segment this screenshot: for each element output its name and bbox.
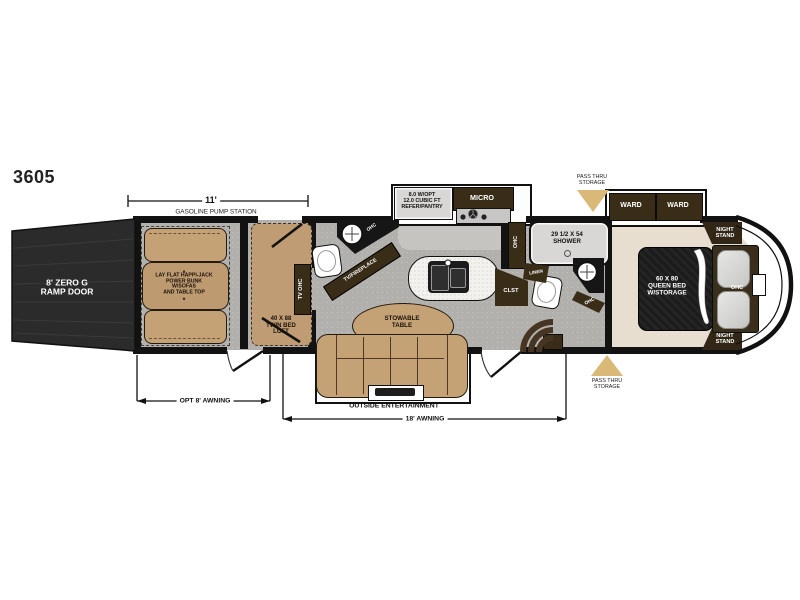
gas-station-label: GASOLINE PUMP STATION [175, 208, 256, 215]
loft-diagonal-top [272, 224, 302, 247]
shower-label: 29 1/2 X 54SHOWER [551, 232, 583, 246]
ward-right-label: WARD [667, 202, 688, 210]
closet-label: CLST [503, 288, 518, 294]
headboard-ohc-label: OHC [731, 285, 743, 291]
island-faucet [445, 260, 451, 266]
kitchen-ohc-label: OHC [513, 236, 519, 248]
stowable-table-label: STOWABLETABLE [385, 316, 420, 330]
garage-length-dim: 11' [202, 196, 220, 206]
pass-thru-arrow-bottom [591, 355, 623, 376]
bed-swoosh [694, 249, 709, 324]
front-cap-outer [736, 217, 791, 353]
bedroom-steps [523, 322, 553, 352]
nightstand-top-label: NIGHTSTAND [716, 227, 735, 239]
power-bunk-label: ▲ LAY FLAT HAPPI-JACKPOWER BUNK W/SOFASA… [155, 269, 212, 302]
arrow-down-icon: ▼ [155, 296, 212, 301]
entry-door-leaf [491, 351, 522, 377]
micro-label: MICRO [470, 194, 494, 202]
nightstand-bottom-label: NIGHTSTAND [716, 333, 735, 345]
pass-thru-top-label: PASS THRUSTORAGE [577, 175, 607, 187]
garage-door-leaf [233, 351, 263, 371]
pass-thru-bottom-label: PASS THRUSTORAGE [592, 379, 622, 391]
pass-thru-arrow-top [577, 190, 609, 212]
ramp-door-label: 8' ZERO GRAMP DOOR [41, 279, 94, 298]
garage-door-swing [227, 351, 233, 371]
loft-bed-label: 40 X 88TWIN BEDLOFT [266, 316, 296, 336]
floorplan-canvas: 3605 11' GASOLINE PUMP STATION 8' ZERO G… [0, 0, 800, 600]
opt-awning-dim: OPT 8' AWNING [177, 397, 234, 404]
refer-label: 8.0 W/OPT12.0 CUBIC FTREFER/PANTRY [401, 193, 442, 211]
model-number: 3605 [13, 167, 55, 188]
stove-burners [460, 210, 486, 220]
queen-bed-label: 60 X 80QUEEN BEDW/STORAGE [647, 275, 686, 296]
geometry-layer [0, 0, 800, 600]
outside-entertainment-label: OUTSIDE ENTERTAINMENT [349, 402, 439, 409]
ward-left-label: WARD [620, 202, 641, 210]
tv-ohc-label: TV OHC [298, 279, 304, 300]
main-awning-dim: 18' AWNING [403, 415, 448, 422]
entry-door-swing [481, 351, 491, 377]
